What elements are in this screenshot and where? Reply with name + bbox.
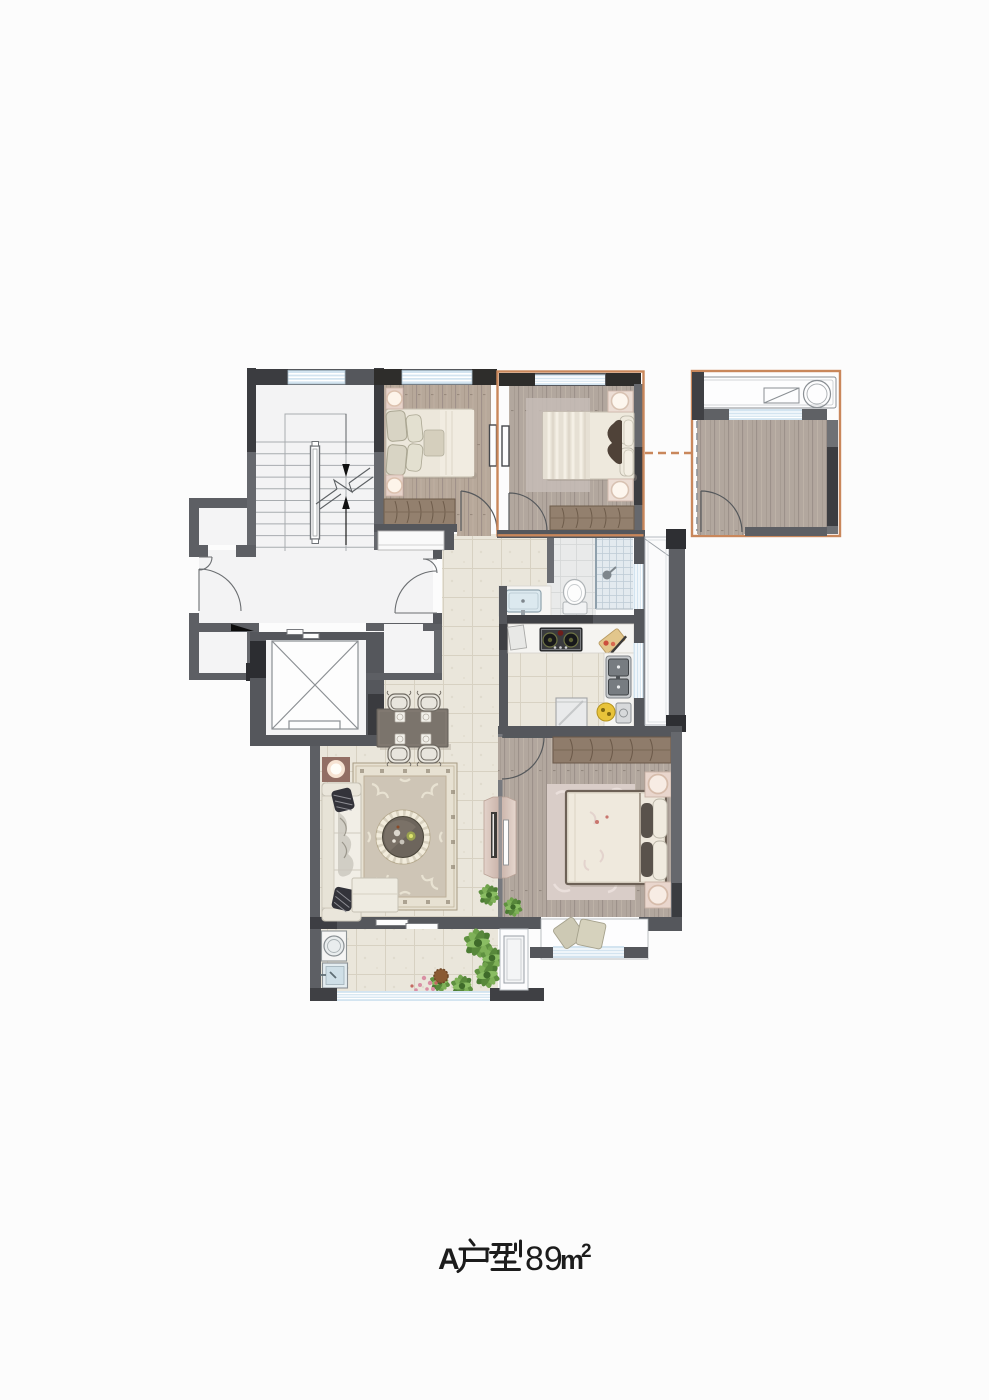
svg-text:2: 2: [581, 1241, 592, 1262]
svg-text:A: A: [438, 1243, 460, 1276]
svg-text:89: 89: [525, 1240, 563, 1278]
